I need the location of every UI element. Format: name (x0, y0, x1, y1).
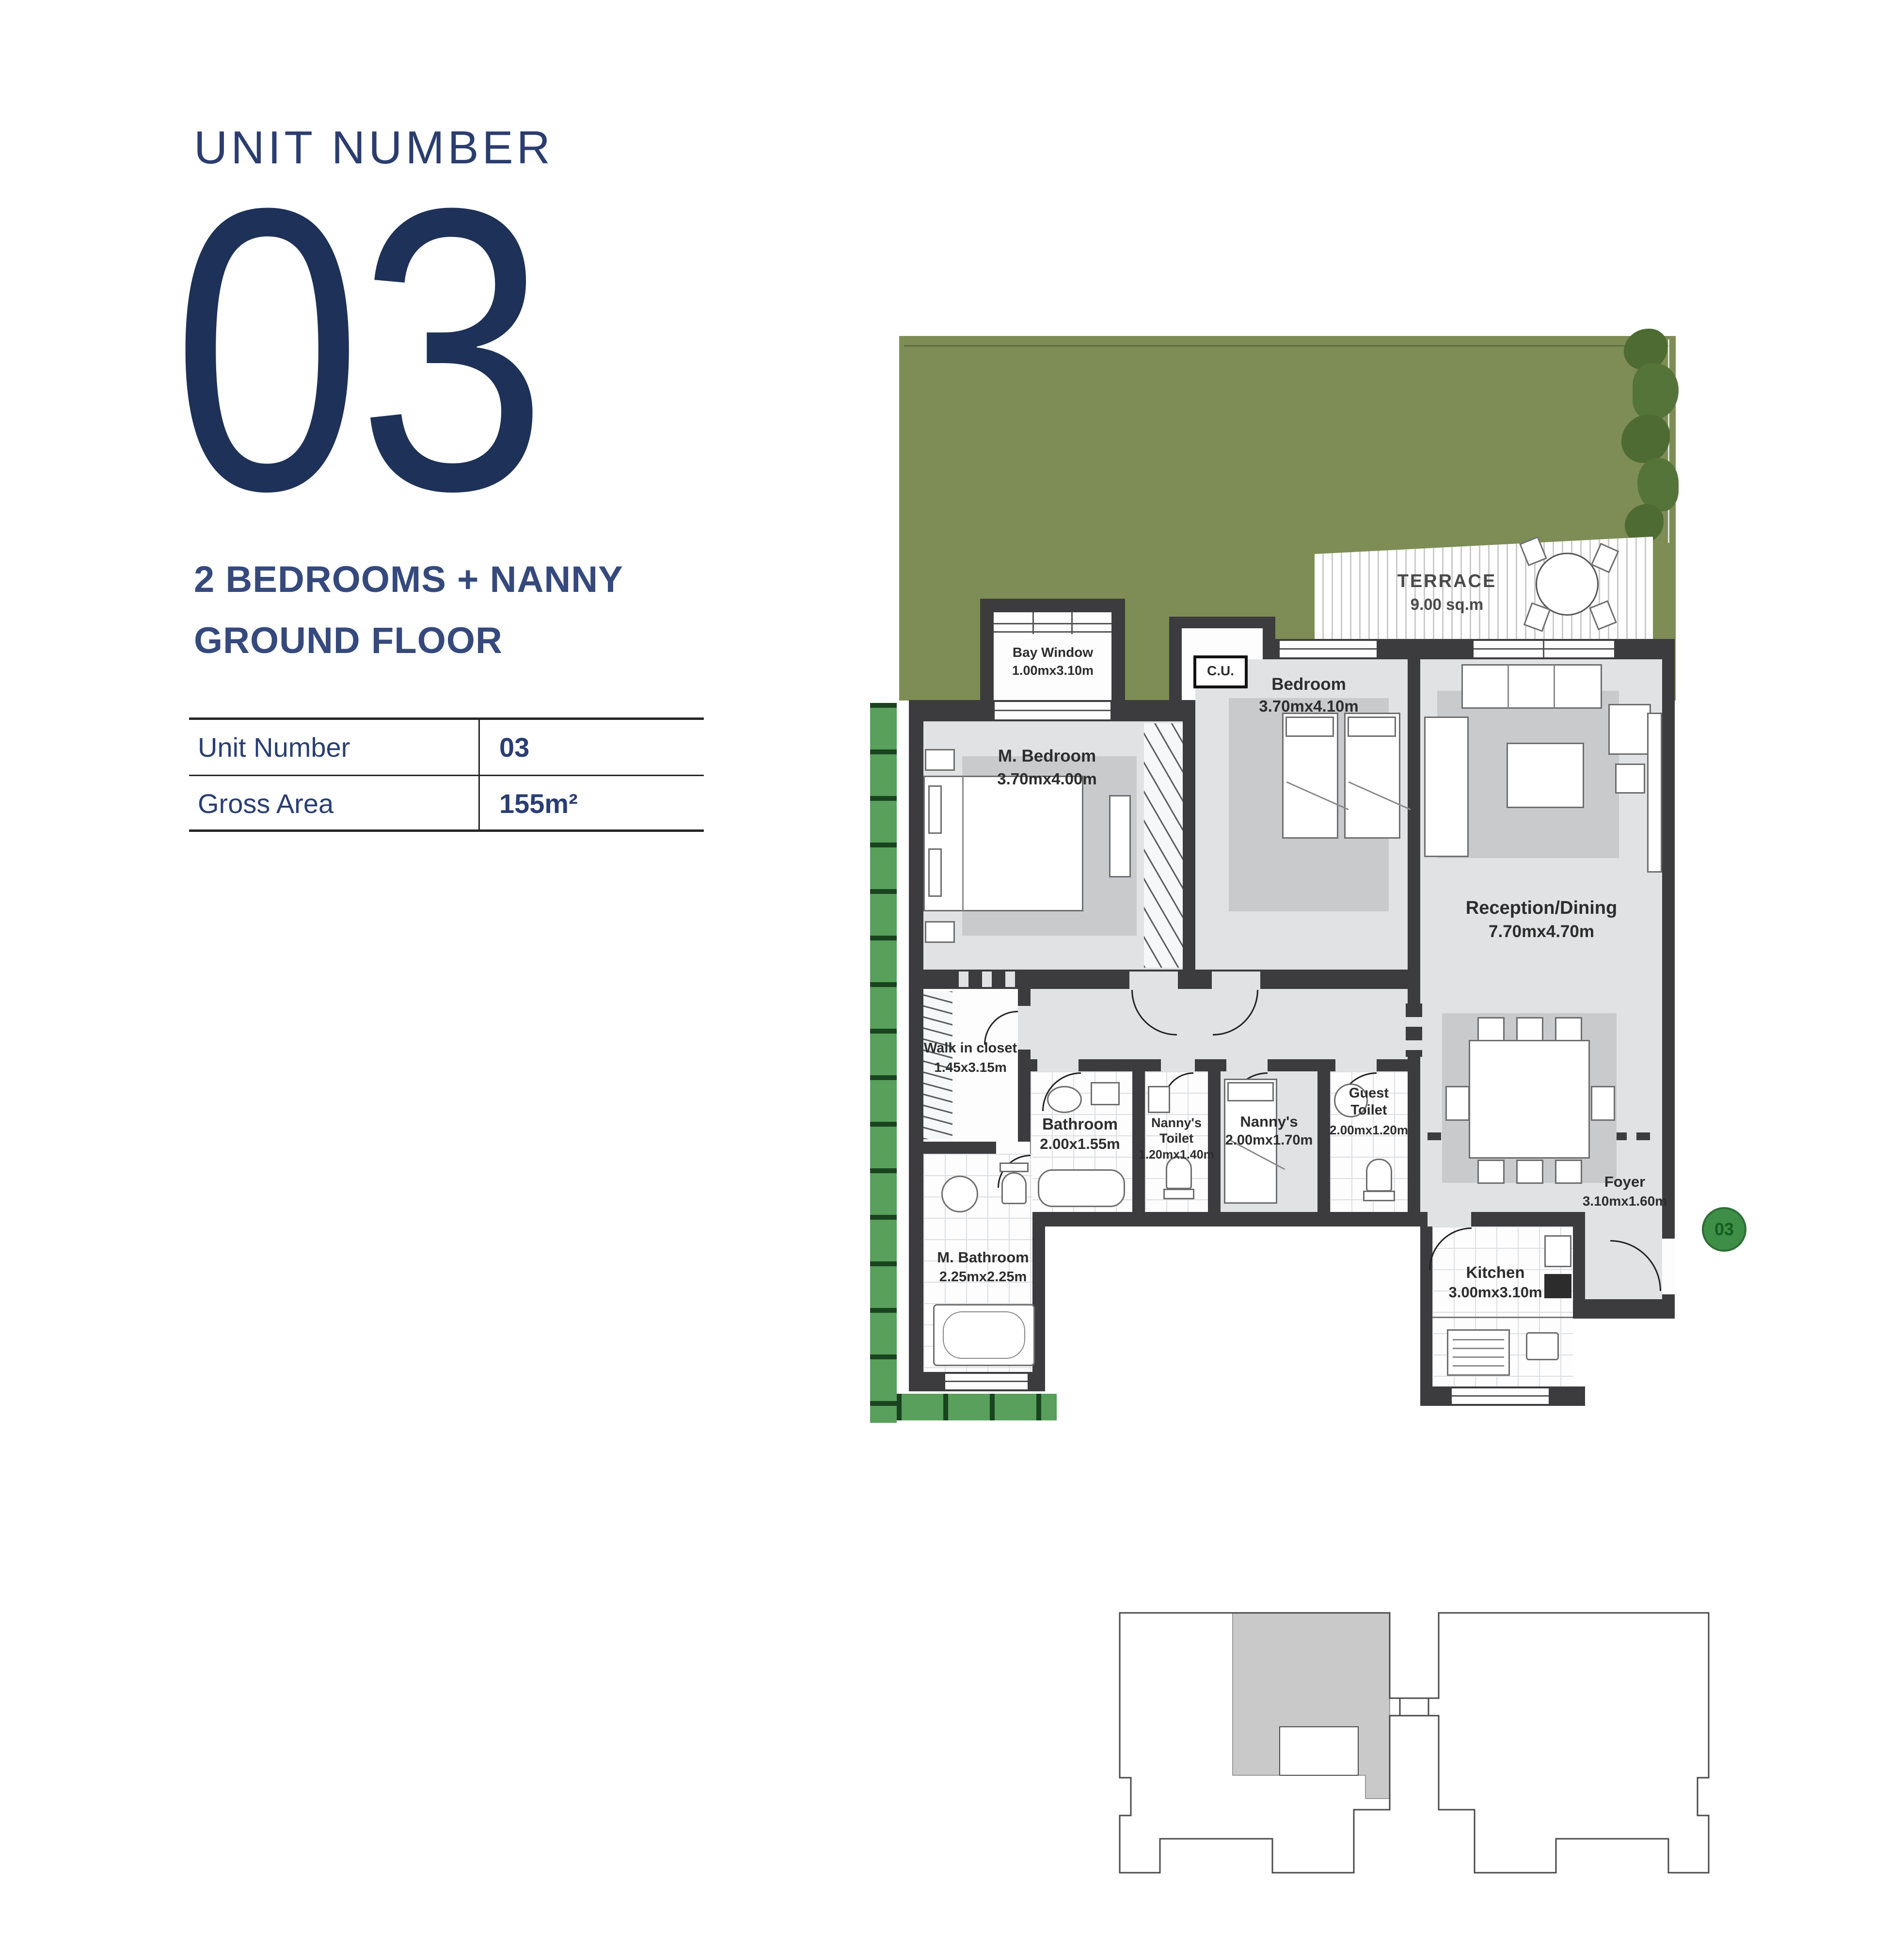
label-reception: Reception/Dining (1466, 898, 1617, 919)
sofa-icon (1461, 664, 1602, 709)
bay-window-frame (994, 631, 1111, 633)
label-walk-in-closet: Walk in closet (924, 1040, 1017, 1056)
door-gap (996, 1142, 1030, 1154)
dashed-opening (945, 971, 1018, 987)
window-line (945, 1381, 1028, 1382)
hedge-bottom (897, 1394, 1057, 1420)
side-table-icon (1615, 764, 1645, 794)
chair-icon (1477, 1017, 1505, 1041)
wall (1420, 1212, 1432, 1406)
wardrobe-hatch (1144, 723, 1183, 968)
wall (1573, 1299, 1675, 1319)
door-gap (1037, 1059, 1079, 1071)
tv-console-icon (1647, 713, 1662, 873)
dashed-opening (1406, 1003, 1422, 1057)
wall (1183, 700, 1195, 970)
garden-inner-line (904, 345, 1670, 347)
unit-marker-badge: 03 (1702, 1207, 1746, 1252)
terrace-table-icon (1536, 553, 1599, 616)
label-bathroom: Bathroom (1042, 1115, 1118, 1133)
label-nannys-dims: 2.00mx1.70m (1225, 1132, 1313, 1148)
chair-icon (1445, 1086, 1470, 1121)
door-gap (1161, 1059, 1195, 1071)
door-gap (1428, 1212, 1471, 1226)
terrace-area-label: 9.00 sq.m (1411, 595, 1483, 614)
wall (1208, 1059, 1221, 1226)
bay-window-mullion (1071, 612, 1073, 634)
door-gap (1018, 1006, 1031, 1050)
label-foyer-dims: 3.10mx1.60m (1583, 1194, 1667, 1209)
key-plan-notch (1280, 1727, 1358, 1775)
label-m-bedroom: M. Bedroom (998, 747, 1096, 766)
table-row: Unit Number 03 (189, 720, 704, 776)
label-bay-window-dims: 1.00mx3.10m (1012, 663, 1094, 678)
label-kitchen-dims: 3.00mx3.10m (1448, 1284, 1542, 1301)
key-plan (1112, 1607, 1716, 1903)
label-nannys-toilet: Nanny's Toilet (1145, 1115, 1208, 1147)
label-nannys: Nanny's (1240, 1113, 1298, 1131)
label-reception-dims: 7.70mx4.70m (1489, 922, 1594, 941)
bed-icon (923, 776, 1083, 911)
stove-line (1453, 1365, 1504, 1367)
stove-line (1453, 1348, 1504, 1349)
door-gap (1335, 1059, 1377, 1071)
oven-icon (1544, 1274, 1571, 1298)
chair-icon (1516, 1017, 1543, 1041)
stove-line (1453, 1356, 1504, 1358)
appliance-icon (1544, 1235, 1571, 1267)
sink-icon (1047, 1086, 1082, 1113)
window-line (1280, 648, 1377, 650)
terrace-label: TERRACE (1397, 571, 1497, 592)
chair-icon (1555, 1160, 1582, 1184)
window-mullion (1543, 641, 1544, 657)
label-guest-toilet: Guest Toilet (1333, 1085, 1405, 1119)
pillow-icon (1285, 717, 1334, 737)
label-bedroom-dims: 3.70mx4.10m (1259, 697, 1359, 716)
pillow-icon (1348, 717, 1396, 737)
wall-left (909, 700, 923, 1391)
pillow-icon (1227, 1082, 1274, 1101)
kitchen-sink-icon (1526, 1332, 1559, 1360)
floorplan-brochure-page: UNIT NUMBER 03 2 BEDROOMS + NANNY GROUND… (0, 0, 1904, 1943)
nightstand-icon (925, 749, 955, 771)
chair-icon (1516, 1160, 1543, 1184)
wall (1317, 1059, 1330, 1226)
label-bay-window: Bay Window (1013, 645, 1093, 660)
sofa-icon (1424, 717, 1469, 857)
chair-icon (1477, 1160, 1505, 1184)
bay-window-frame (994, 623, 1111, 624)
toilet-icon (1001, 1172, 1027, 1204)
label-nannys-toilet-dims: 1.20mx1.40m (1139, 1148, 1214, 1162)
table-row: Gross Area 155m² (189, 776, 704, 831)
hedge-left (870, 703, 897, 1423)
door-gap (1129, 971, 1178, 989)
sink-icon (941, 1176, 978, 1212)
label-foyer: Foyer (1604, 1173, 1645, 1191)
door-gap (1226, 1059, 1268, 1071)
sofa-cushion-line (1507, 665, 1509, 708)
subtitle-bedrooms: 2 BEDROOMS + NANNY (194, 558, 623, 601)
spec-label-gross-area: Gross Area (198, 776, 333, 831)
label-bedroom: Bedroom (1271, 675, 1346, 694)
chair-icon (1555, 1017, 1582, 1041)
spec-table: Unit Number 03 Gross Area 155m² (189, 717, 704, 832)
sofa-cushion-line (1554, 665, 1555, 708)
window-line (995, 710, 1111, 711)
label-kitchen: Kitchen (1466, 1263, 1524, 1282)
unit-number-big: 03 (172, 178, 542, 521)
label-m-bedroom-dims: 3.70mx4.00m (997, 770, 1097, 788)
spec-value-unit-number: 03 (499, 720, 529, 775)
label-guest-toilet-dims: 2.00mx1.20m (1330, 1123, 1408, 1138)
pillow-icon (928, 848, 942, 897)
toilet-tank-icon (1163, 1189, 1194, 1199)
window-line (1452, 1395, 1549, 1397)
dining-table-icon (1469, 1040, 1590, 1159)
bay-window-mullion (1032, 612, 1034, 634)
nightstand-icon (925, 921, 955, 943)
bathtub-icon (1038, 1169, 1125, 1207)
sink-icon (1148, 1086, 1170, 1113)
coffee-table-icon (1507, 743, 1584, 808)
label-cu: C.U. (1207, 663, 1234, 679)
door-gap (1212, 971, 1260, 989)
toilet-icon (1366, 1159, 1392, 1192)
dresser-icon (1109, 795, 1131, 877)
chair-icon (1591, 1086, 1615, 1121)
toilet-tank-icon (1000, 1163, 1029, 1172)
label-m-bathroom: M. Bathroom (937, 1249, 1029, 1266)
toilet-tank-icon (1363, 1191, 1395, 1201)
wall-right (1662, 639, 1675, 1319)
label-bathroom-dims: 2.00x1.55m (1040, 1135, 1120, 1153)
label-m-bathroom-dims: 2.25mx2.25m (939, 1269, 1027, 1285)
stove-line (1453, 1339, 1504, 1340)
wall (1031, 1212, 1585, 1226)
unit-marker-number: 03 (1714, 1219, 1734, 1240)
wall (1408, 639, 1420, 989)
spec-value-gross-area: 155m² (499, 776, 578, 831)
subtitle-floor: GROUND FLOOR (194, 620, 503, 662)
wall (1132, 1059, 1145, 1226)
bed-line (962, 777, 964, 910)
counter-line (1432, 1317, 1573, 1318)
bathtub-inner (943, 1311, 1025, 1359)
armchair-icon (1608, 704, 1651, 755)
stove-icon (1447, 1329, 1510, 1376)
spec-label-unit-number: Unit Number (198, 720, 350, 775)
entrance-gap (1662, 1239, 1675, 1294)
pillow-icon (928, 785, 942, 834)
vanity-icon (1091, 1082, 1120, 1105)
label-walk-in-closet-dims: 1.45x3.15m (934, 1060, 1006, 1075)
key-plan-right-block (1400, 1613, 1709, 1873)
